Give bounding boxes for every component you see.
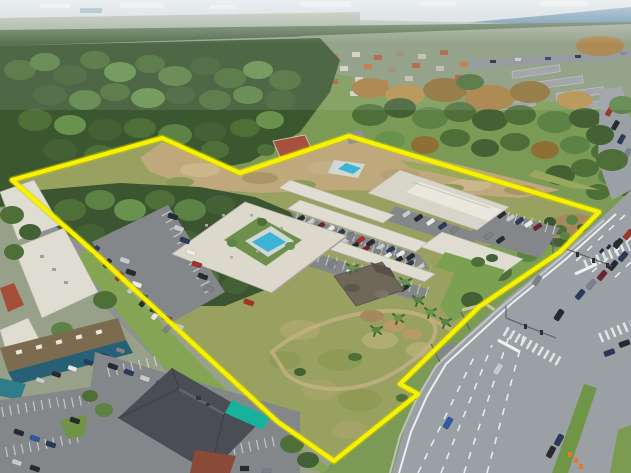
distance-tint (0, 0, 631, 110)
aerial-photo (0, 0, 631, 473)
aerial-photo-canvas (0, 0, 631, 473)
